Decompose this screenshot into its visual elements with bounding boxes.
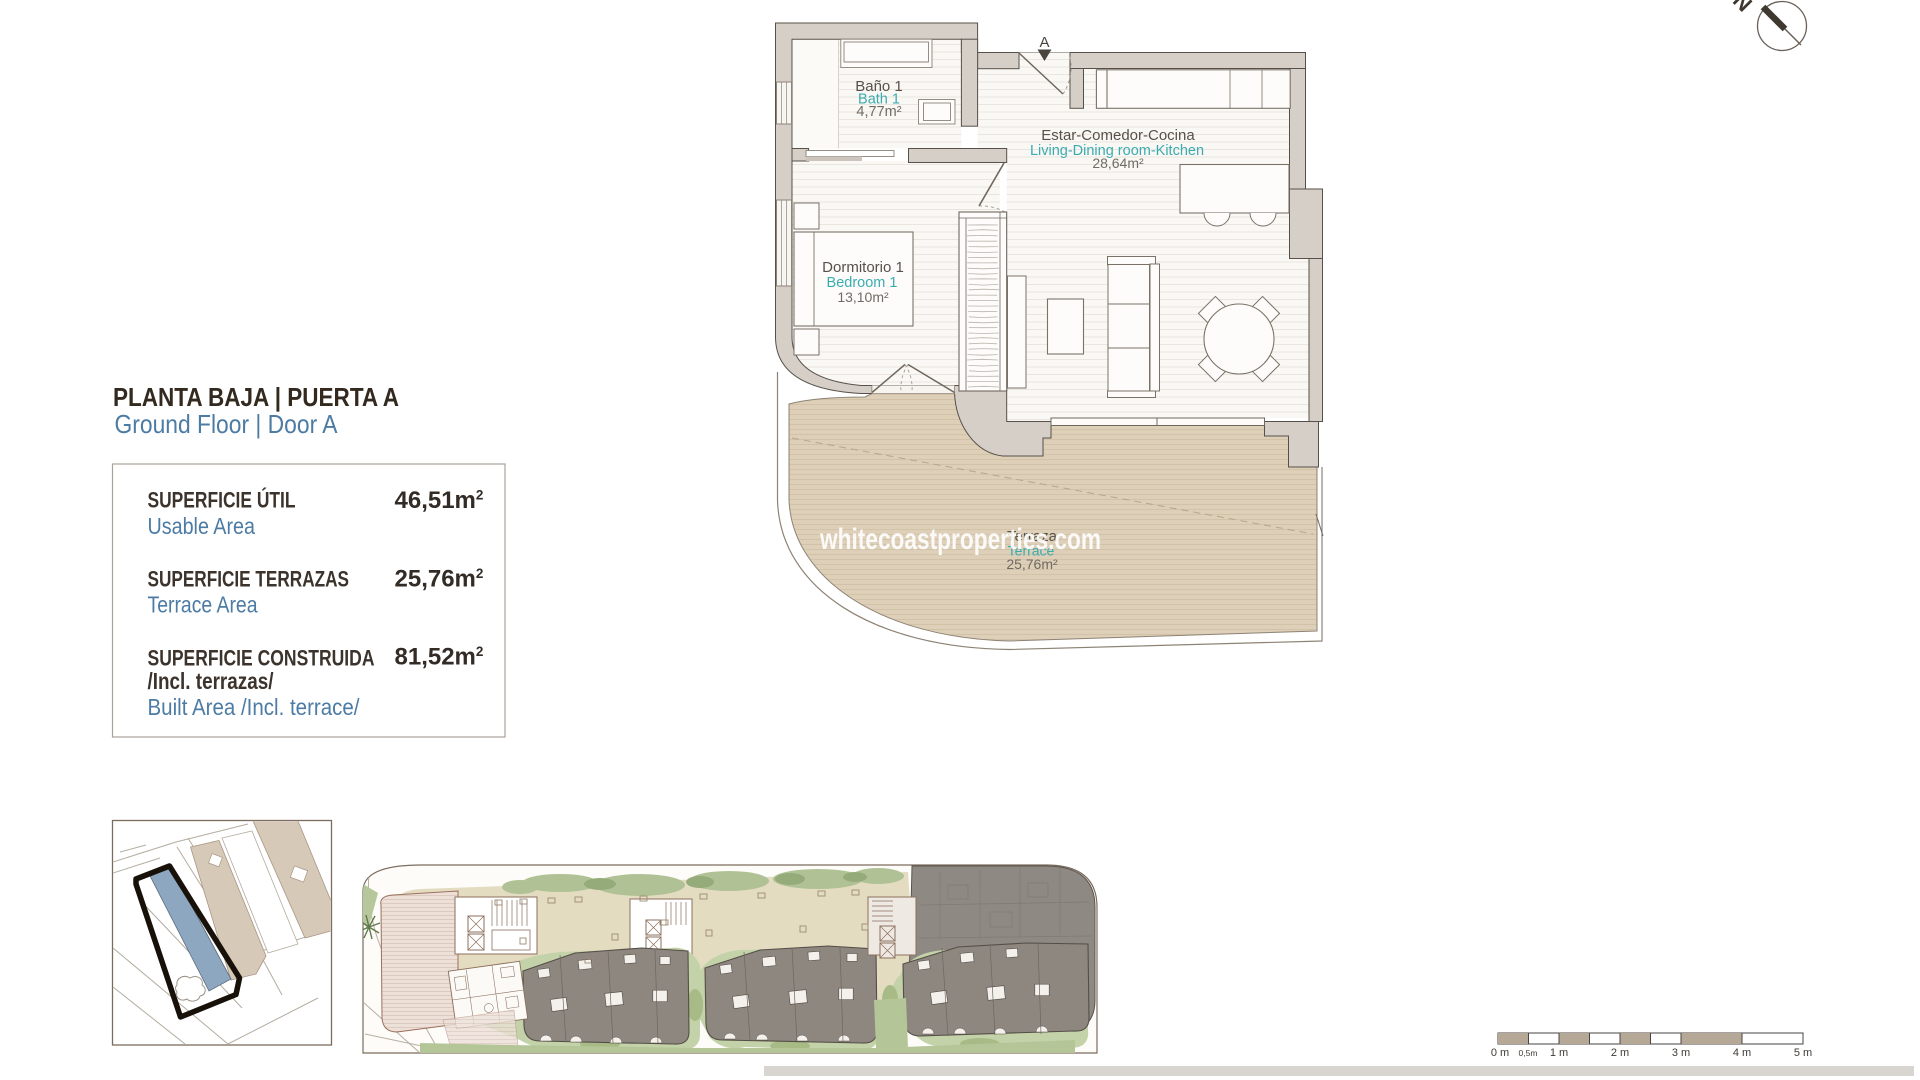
svg-text:SUPERFICIE CONSTRUIDA: SUPERFICIE CONSTRUIDA	[148, 646, 375, 671]
svg-text:3 m: 3 m	[1672, 1047, 1690, 1059]
svg-text:whitecoastproperties.com: whitecoastproperties.com	[819, 523, 1101, 556]
svg-text:SUPERFICIE TERRAZAS: SUPERFICIE TERRAZAS	[148, 567, 350, 592]
svg-text:4 m: 4 m	[1733, 1047, 1751, 1059]
svg-text:28,64m²: 28,64m²	[1092, 155, 1144, 171]
svg-text:0 m: 0 m	[1491, 1047, 1509, 1059]
svg-text:Terrace Area: Terrace Area	[148, 592, 258, 618]
svg-text:46,51m2: 46,51m2	[395, 487, 484, 514]
svg-text:0,5m: 0,5m	[1519, 1048, 1538, 1058]
svg-text:25,76m²: 25,76m²	[1006, 556, 1058, 572]
svg-text:Estar-Comedor-Cocina: Estar-Comedor-Cocina	[1041, 127, 1195, 144]
svg-text:A: A	[1039, 34, 1049, 51]
svg-text:25,76m2: 25,76m2	[395, 566, 484, 593]
svg-text:SUPERFICIE ÚTIL: SUPERFICIE ÚTIL	[148, 488, 296, 513]
svg-text:1 m: 1 m	[1550, 1047, 1568, 1059]
svg-text:Built Area /Incl. terrace/: Built Area /Incl. terrace/	[148, 694, 361, 720]
svg-text:4,77m²: 4,77m²	[856, 104, 901, 120]
svg-text:PLANTA BAJA | PUERTA A: PLANTA BAJA | PUERTA A	[113, 382, 399, 412]
svg-text:2 m: 2 m	[1611, 1047, 1629, 1059]
svg-text:13,10m²: 13,10m²	[837, 289, 889, 305]
svg-text:Dormitorio 1: Dormitorio 1	[822, 259, 904, 276]
svg-text:Ground Floor | Door A: Ground Floor | Door A	[115, 409, 339, 439]
svg-text:/Incl. terrazas/: /Incl. terrazas/	[148, 668, 274, 694]
svg-text:81,52m2: 81,52m2	[395, 644, 484, 671]
svg-text:5 m: 5 m	[1794, 1047, 1812, 1059]
svg-text:Usable Area: Usable Area	[148, 513, 256, 539]
